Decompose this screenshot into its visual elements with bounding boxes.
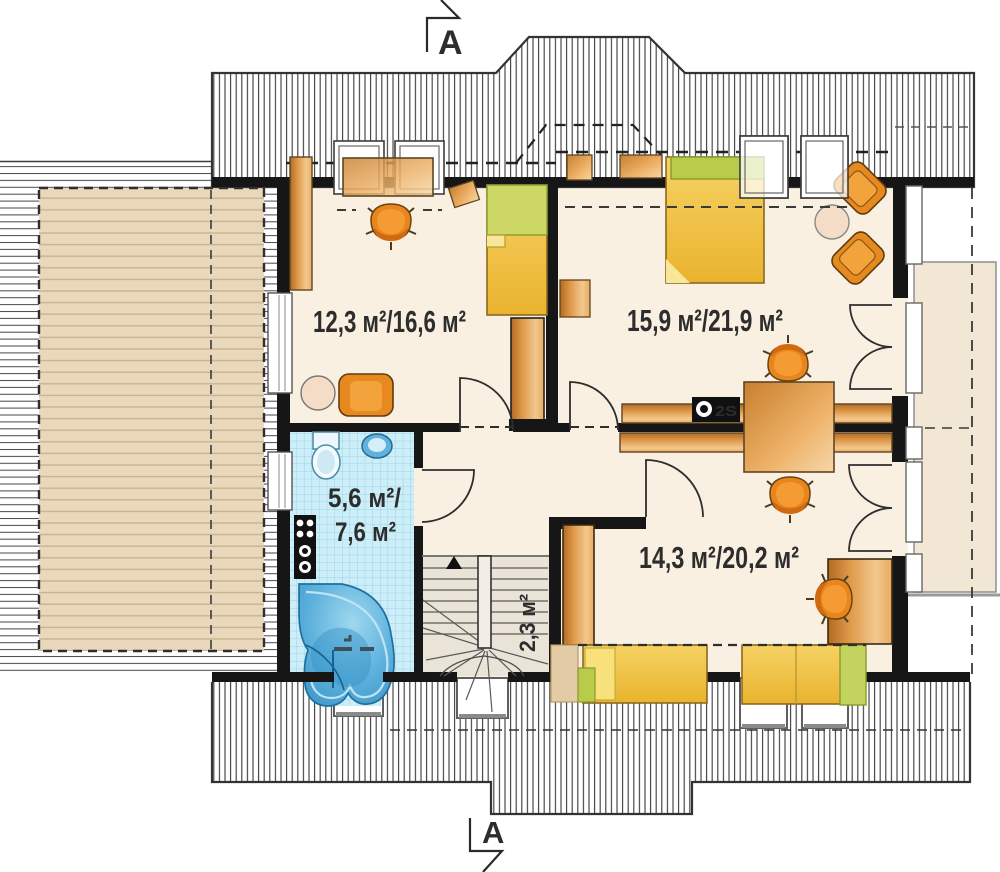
svg-text:2S: 2S	[715, 403, 737, 420]
svg-text:2,3 м²: 2,3 м²	[515, 594, 540, 652]
svg-text:12,3 м²/16,6 м²: 12,3 м²/16,6 м²	[313, 304, 466, 339]
svg-text:A: A	[438, 24, 463, 62]
svg-text:A: A	[482, 815, 504, 850]
svg-text:14,3 м²/20,2 м²: 14,3 м²/20,2 м²	[639, 540, 799, 575]
svg-text:15,9 м²/21,9 м²: 15,9 м²/21,9 м²	[627, 303, 783, 338]
svg-text:7,6 м²: 7,6 м²	[335, 517, 396, 547]
svg-text:5,6 м²/: 5,6 м²/	[328, 483, 401, 513]
